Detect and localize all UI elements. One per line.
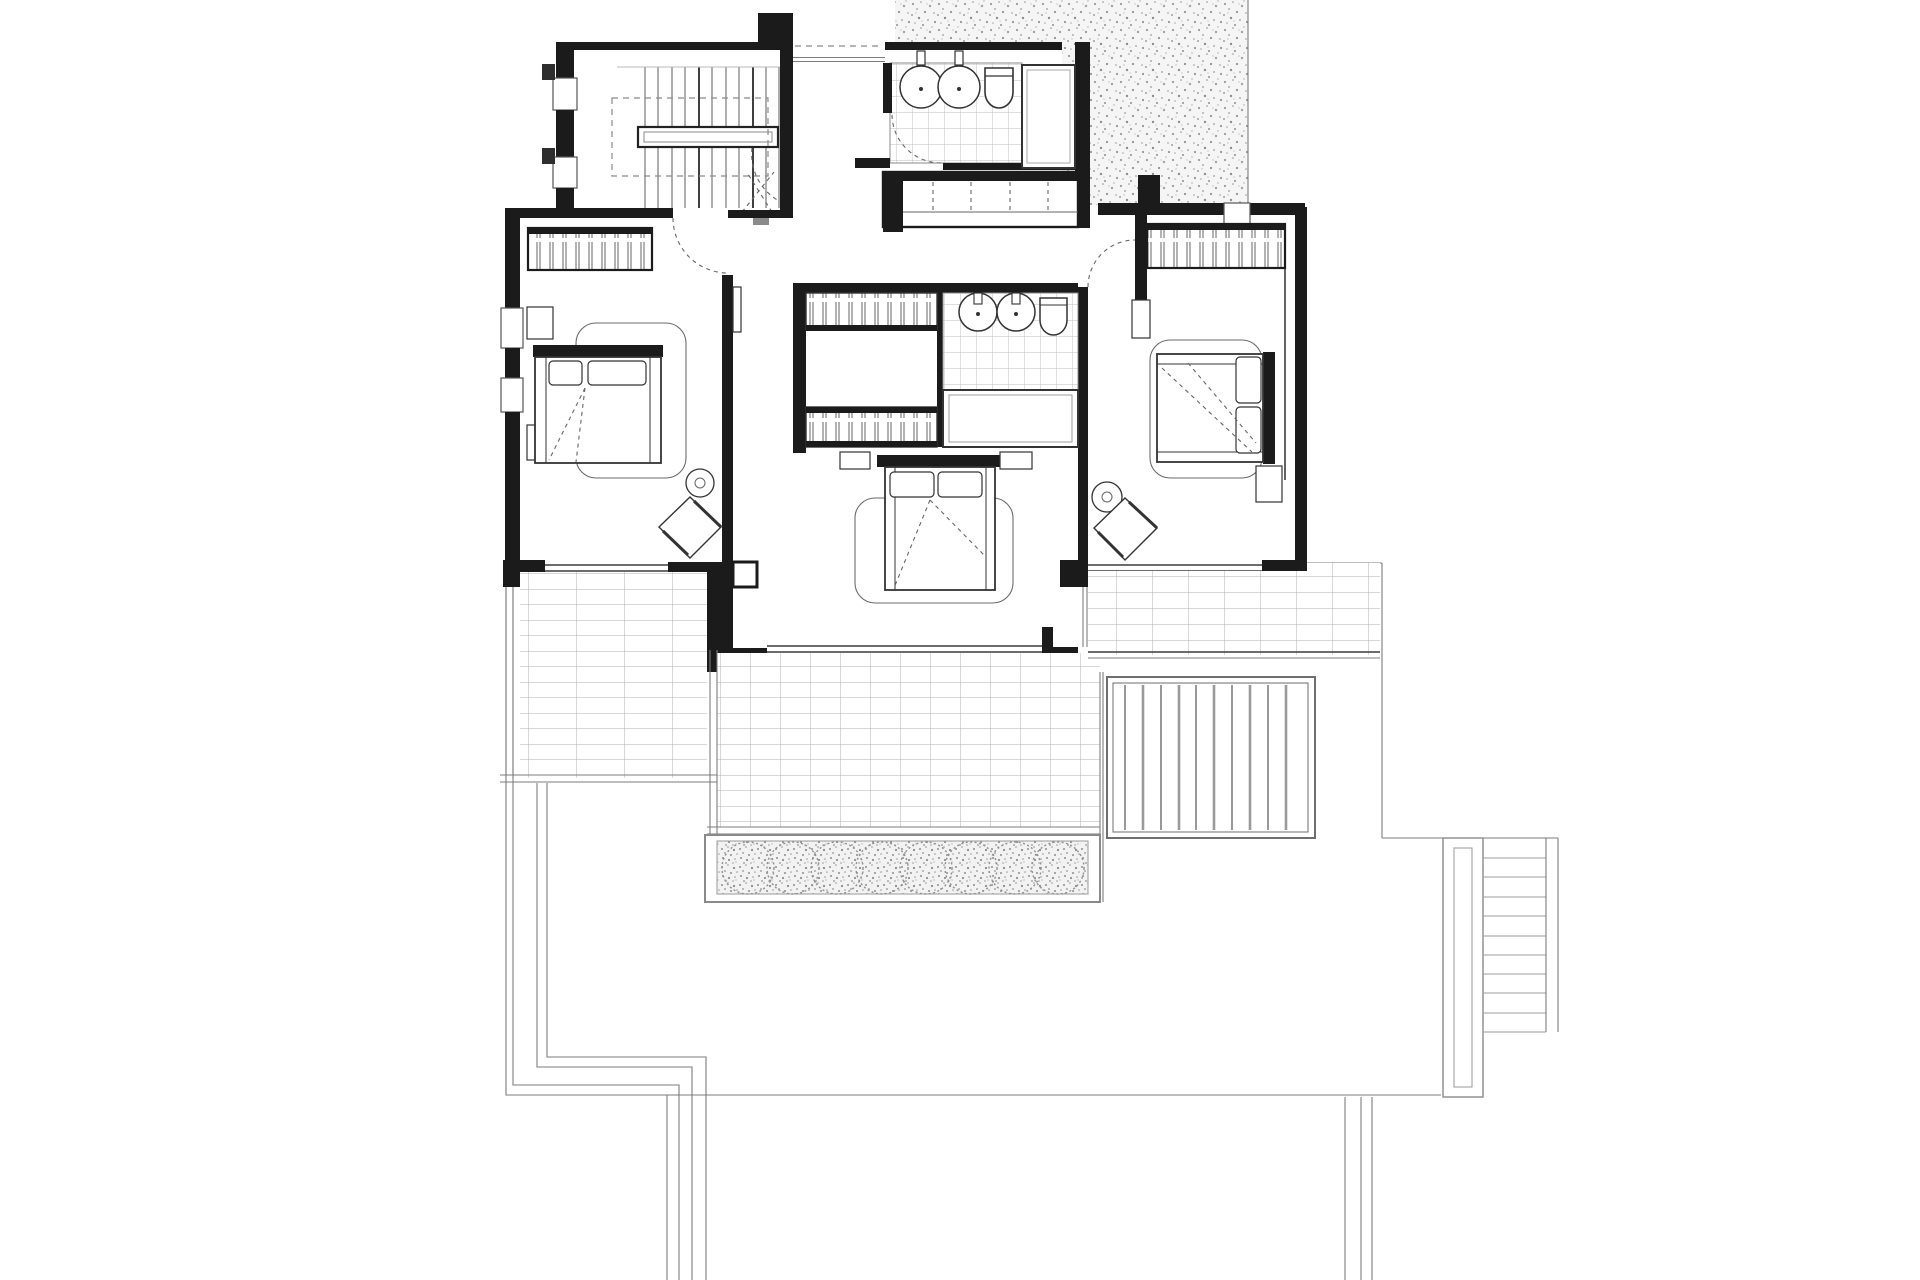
nightstand: [1256, 466, 1282, 502]
nightstand: [840, 452, 870, 469]
wall-left-b: [556, 110, 574, 157]
pilaster-tab-2: [542, 148, 555, 164]
tiles: [1088, 571, 1380, 655]
wall-stub: [728, 210, 780, 218]
nightstand: [1000, 452, 1032, 469]
pillow: [1236, 357, 1261, 403]
landing-door-swing: [752, 148, 779, 201]
pergola: [1107, 677, 1315, 838]
wardrobe: [528, 228, 652, 270]
wall-left: [793, 293, 806, 453]
window-sill-box: [527, 307, 553, 339]
pillow: [588, 361, 646, 385]
closet-run-upper: [806, 293, 937, 331]
basin-icon: [938, 51, 980, 108]
floor-plan-sheet: [0, 0, 1920, 1280]
outline-4: [547, 783, 706, 1280]
side-table-icon: [686, 469, 714, 497]
stipple-band: [895, 0, 1248, 42]
pier-sw: [1060, 560, 1088, 587]
wall-stub-left: [855, 158, 890, 168]
direction-line: [742, 172, 774, 212]
wall-top: [507, 208, 673, 218]
wall-right: [780, 42, 793, 218]
bathroom-ensuite: [943, 293, 1078, 447]
pilaster-tab-1: [542, 64, 555, 80]
threshold-tab: [753, 218, 769, 225]
wall-top: [793, 283, 1078, 293]
stair-side-wall-core: [1454, 848, 1472, 1087]
door-leaf: [733, 287, 741, 332]
wall-top: [556, 42, 793, 50]
door-swing-bedroom-right: [1088, 240, 1135, 287]
closet-top-bar: [883, 172, 1078, 181]
bedroom-left: [501, 208, 741, 587]
wall-left-c: [505, 412, 520, 562]
tiles-ext: [1307, 563, 1380, 571]
wall-left: [883, 63, 892, 113]
window-2: [501, 378, 523, 412]
pergola-frame: [1107, 677, 1315, 838]
closet-left-pier: [883, 172, 903, 232]
wall-right: [1295, 207, 1307, 585]
shower-icon: [1022, 65, 1075, 168]
door-swing-bedroom-left: [673, 218, 728, 273]
closet-run-lower: [806, 407, 937, 447]
headboard: [877, 455, 1000, 467]
armchair-icon: [659, 497, 721, 558]
double-bed: [855, 455, 1013, 603]
double-bed: [533, 323, 686, 478]
window-left-1: [553, 78, 577, 110]
double-bed: [1150, 340, 1275, 478]
stair-room: [542, 13, 793, 218]
wall-top: [885, 42, 1062, 50]
tiles: [717, 653, 1100, 827]
bathtub-icon: [943, 390, 1078, 447]
wall-right: [722, 275, 733, 563]
window-left-2: [553, 157, 577, 188]
pillow: [938, 472, 982, 497]
wall-left-a: [505, 208, 520, 308]
floor-plan-drawing: [0, 0, 1920, 1280]
pillow: [890, 472, 934, 497]
terrace-right: [1088, 563, 1380, 658]
basin-icon: [997, 293, 1035, 331]
pier-stem: [1042, 627, 1053, 647]
hall-closet: [883, 172, 1078, 232]
wall-top: [1098, 203, 1305, 215]
bedroom-right: [1060, 175, 1307, 587]
wardrobe: [1147, 224, 1285, 268]
window-1: [501, 308, 523, 348]
headboard: [533, 345, 663, 357]
basin-icon: [900, 51, 942, 108]
wall-left: [1135, 215, 1147, 300]
pillow: [549, 361, 582, 385]
handrail: [638, 127, 778, 147]
pier-entry: [1138, 175, 1160, 205]
planter: [705, 835, 1100, 902]
stair-treads: [1483, 858, 1546, 1032]
wall-end-cap: [1132, 300, 1150, 338]
basin-icon: [959, 293, 997, 331]
plank-tiles: [520, 572, 707, 778]
bedroom-center: [767, 452, 1087, 672]
outline-3: [537, 783, 692, 1280]
terrace-left: [500, 572, 717, 782]
wall-left-a: [556, 42, 574, 78]
pillow: [1236, 407, 1261, 453]
wall-right: [1078, 287, 1088, 565]
toilet-icon: [1040, 298, 1067, 335]
headboard: [1263, 352, 1275, 464]
wall-left-b: [505, 348, 520, 378]
toilet-icon: [985, 68, 1013, 108]
